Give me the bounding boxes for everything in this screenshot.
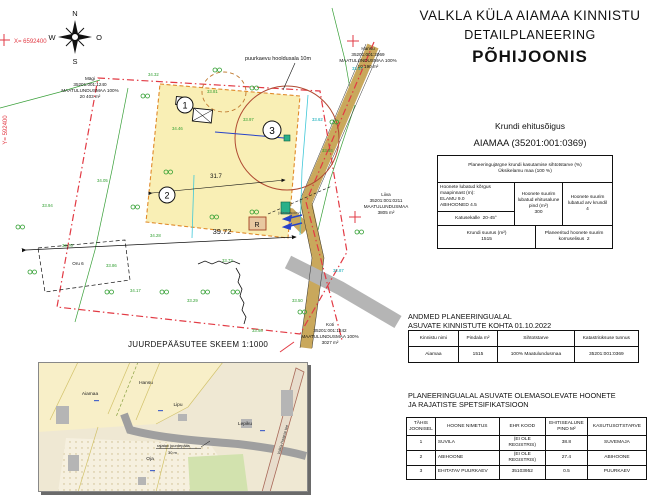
svg-text:34.17: 34.17 <box>130 288 141 293</box>
position-2: 2 <box>164 191 169 201</box>
svg-text:35201:001:2069: 35201:001:2069 <box>351 52 385 57</box>
oru-parcel-label: Oru 6 <box>72 261 84 266</box>
svg-text:33.86: 33.86 <box>106 263 117 268</box>
svg-text:MAATULUNDUSMAA 100%: MAATULUNDUSMAA 100% <box>61 88 118 93</box>
dimension-inner: 31.7 <box>210 174 222 180</box>
svg-text:33.70: 33.70 <box>62 243 73 248</box>
svg-text:Liiva: Liiva <box>381 192 391 197</box>
svg-text:rajatav juurdepääs: rajatav juurdepääs <box>157 443 190 448</box>
plot-size-cell: Krundi suurus (m²) 1515 <box>438 226 536 249</box>
buildable-area <box>146 84 300 238</box>
cadastral-table: Kinnistu nimi Pindala m² Sihtotstarve Ka… <box>408 330 639 363</box>
east-label: O <box>96 33 102 42</box>
inset-label-lipu: Lipu <box>173 402 182 408</box>
svg-text:MAATULUNDUSMAA 100%: MAATULUNDUSMAA 100% <box>301 334 358 339</box>
dimension-main: 39.72 <box>213 227 232 236</box>
table-header-row: TÄHIS JOONISEL HOONE NIMETUS EHR KOOD EH… <box>407 418 647 436</box>
position-3: 3 <box>269 126 275 137</box>
site-plan-svg: R (olemasolev) 39.72 31.7 1 2 3 puurkaev… <box>0 0 415 358</box>
svg-text:30 m: 30 m <box>168 450 178 455</box>
inset-green-parcel <box>188 454 248 492</box>
svg-text:32.87: 32.87 <box>333 268 344 273</box>
y-coordinate-label: Y= 592400 <box>3 115 9 145</box>
well-icon <box>284 135 290 141</box>
spec-table: TÄHIS JOONISEL HOONE NIMETUS EHR KOOD EH… <box>406 417 647 480</box>
roof-cell: Katusekalle 20-45° <box>438 212 515 226</box>
spec-table-heading: PLANEERINGUALAL ASUVATE OLEMASOLEVATE HO… <box>408 391 650 410</box>
inset-label-hansu: Hansu <box>139 380 153 386</box>
svg-text:MAATULUNDUSMAA: MAATULUNDUSMAA <box>364 204 410 209</box>
svg-text:Mägi: Mägi <box>85 76 95 81</box>
svg-text:35201:001:1242: 35201:001:1242 <box>313 328 347 333</box>
svg-text:33.50: 33.50 <box>292 298 303 303</box>
inset-title: JUURDEPÄÄSUTEE SKEEM 1:1000 <box>128 340 268 349</box>
svg-text:33.72: 33.72 <box>222 258 233 263</box>
x-coordinate-label: X= 6592400 <box>14 39 47 45</box>
storeys-cell: Planeeritud hoonete suurim korruselisus … <box>536 226 613 249</box>
parcel-label-magi: Mägi 35201:001:1240 MAATULUNDUSMAA 100% … <box>61 76 118 99</box>
site-plan-map: R (olemasolev) 39.72 31.7 1 2 3 puurkaev… <box>0 0 415 358</box>
title-line-3: PÕHIJOONIS <box>412 47 648 67</box>
svg-text:33.98: 33.98 <box>252 328 263 333</box>
svg-text:35201:001:0211: 35201:001:0211 <box>370 198 403 203</box>
svg-text:34.32: 34.32 <box>148 72 159 77</box>
svg-text:34.28: 34.28 <box>150 233 161 238</box>
drawing-title: VALKLA KÜLA AIAMAA KINNISTU DETAILPLANEE… <box>412 8 648 67</box>
title-red-tick <box>278 340 298 354</box>
refuse-note: (olemasolev) <box>278 210 302 215</box>
svg-text:Hansu: Hansu <box>361 46 375 51</box>
svg-text:33.94: 33.94 <box>42 203 53 208</box>
svg-text:33.62: 33.62 <box>312 117 323 122</box>
parcel-label-hansu: Hansu 35201:001:2069 MAATULUNDUSMAA 100%… <box>339 46 396 69</box>
table-row: 2 ABIHOONE (EI OLE REGISTRIS) 27.4 ABIHO… <box>407 450 647 465</box>
title-line-2: DETAILPLANEERING <box>412 28 648 42</box>
access-scheme-svg: Valkla-Haapse tee Aiamaa Hansu Lipu Lepi… <box>38 362 308 492</box>
svg-text:34.46: 34.46 <box>172 126 183 131</box>
table-row: 1 SUVILA (EI OLE REGISTRIS) 38.8 SUVEMAJ… <box>407 436 647 451</box>
svg-text:3027 m²: 3027 m² <box>322 340 339 345</box>
svg-text:33.29: 33.29 <box>187 298 198 303</box>
svg-text:20 403 m²: 20 403 m² <box>80 94 101 99</box>
building-rights-heading: Krundi ehitusõigus <box>412 121 648 131</box>
inset-label-oja: Oja <box>146 456 154 462</box>
position-1: 1 <box>182 101 187 111</box>
building-rights-table: Planeeringujärgne krundi kasutamise siht… <box>437 155 613 249</box>
well-zone-label: puurkaevu hooldusala 10m <box>245 56 311 62</box>
parcel-label-liiva: Liiva 35201:001:0211 MAATULUNDUSMAA 3805… <box>364 192 410 215</box>
table-row: Aiamaa 1515 100% Maatulundusmaa 35201:00… <box>409 347 639 363</box>
svg-text:33.97: 33.97 <box>243 117 254 122</box>
north-label: N <box>72 9 77 18</box>
title-line-1: VALKLA KÜLA AIAMAA KINNISTU <box>412 8 648 23</box>
max-buildings-cell: Hoonete suurim lubatud arv krundil 4 <box>563 183 613 226</box>
compass-icon: N S W O <box>48 9 102 66</box>
svg-text:33.81: 33.81 <box>207 89 218 94</box>
svg-text:33.47: 33.47 <box>352 66 363 71</box>
svg-text:33.84: 33.84 <box>322 148 333 153</box>
inset-label-lepiku: Lepiku <box>238 421 252 427</box>
svg-text:Koti: Koti <box>326 322 334 327</box>
purpose-cell: Planeeringujärgne krundi kasutamise siht… <box>438 156 613 183</box>
west-label: W <box>48 33 56 42</box>
svg-text:3805 m²: 3805 m² <box>378 210 395 215</box>
height-cell: Hoonete lubatud kõrgus maapinnast (m): E… <box>438 183 515 212</box>
table-row: 3 EHITATAV PUURKAEV 35103952 0.5 PUURKAE… <box>407 465 647 479</box>
building-area-cell: Hoonete suurim lubatud ehitusalune pind … <box>515 183 563 226</box>
inset-label-aiamaa: Aiamaa <box>82 391 99 397</box>
refuse-box-label: R <box>254 222 259 229</box>
table-header-row: Kinnistu nimi Pindala m² Sihtotstarve Ka… <box>409 331 639 347</box>
building-rights-subheading: AIAMAA (35201:001:0369) <box>412 138 648 149</box>
svg-text:34.05: 34.05 <box>97 178 108 183</box>
access-scheme-map: Valkla-Haapse tee Aiamaa Hansu Lipu Lepi… <box>38 362 308 492</box>
svg-text:35201:001:1240: 35201:001:1240 <box>73 82 107 87</box>
svg-text:MAATULUNDUSMAA 100%: MAATULUNDUSMAA 100% <box>339 58 396 63</box>
cadastral-table-heading: ANDMED PLANEERINGUALAL ASUVATE KINNISTUT… <box>408 312 650 331</box>
south-label: S <box>72 57 77 66</box>
